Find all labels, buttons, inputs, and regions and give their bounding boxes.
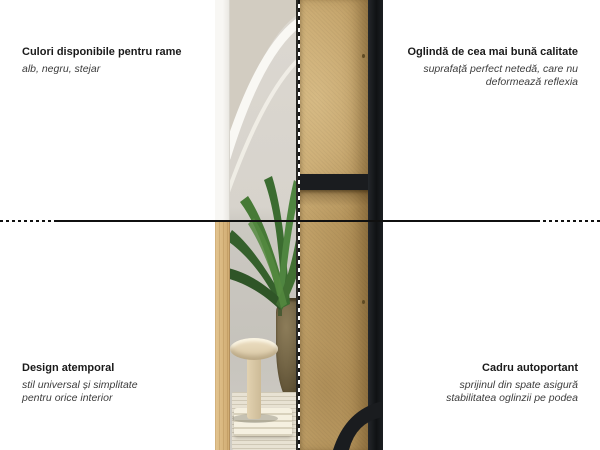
screw-dot [362, 300, 365, 304]
wooden-stool-leg [247, 355, 261, 419]
mirror-glass [230, 0, 298, 450]
callout-timeless-design: Design atemporal stil universal și simpl… [22, 362, 232, 406]
callout-line-dotted-right [543, 220, 600, 222]
callout-title: Design atemporal [22, 362, 232, 376]
callout-line-horizontal [57, 220, 540, 222]
front-back-divider-dotted-line [298, 0, 300, 450]
screw-dot [362, 54, 365, 58]
oak-frame-strip [215, 221, 230, 450]
callout-line-dotted-left [0, 220, 57, 222]
mirror-feature-infographic: Culori disponibile pentru rame alb, negr… [0, 0, 600, 450]
stand-bracket [300, 174, 374, 190]
callout-subtitle-line1: sprijinul din spate asigură [368, 379, 578, 393]
mdf-back-panel [300, 0, 368, 450]
callout-title: Cadru autoportant [368, 362, 578, 376]
palm-plant [230, 116, 298, 328]
callout-subtitle-line2: pentru orice interior [22, 392, 232, 406]
callout-frame-colors: Culori disponibile pentru rame alb, negr… [22, 46, 232, 76]
callout-subtitle-line2: deformează reflexia [368, 76, 578, 90]
callout-self-standing-frame: Cadru autoportant sprijinul din spate as… [368, 362, 578, 406]
callout-mirror-quality: Oglindă de cea mai bună calitate suprafa… [368, 46, 578, 90]
wooden-stool [230, 338, 278, 360]
callout-subtitle-line2: stabilitatea oglinzii pe podea [368, 392, 578, 406]
callout-title: Culori disponibile pentru rame [22, 46, 232, 60]
callout-subtitle-line1: suprafață perfect netedă, care nu [368, 63, 578, 77]
stand-bracket-shadow [300, 190, 374, 206]
white-frame-strip [215, 0, 230, 221]
callout-subtitle-line1: stil universal și simplitate [22, 379, 232, 393]
callout-subtitle: alb, negru, stejar [22, 63, 232, 77]
callout-title: Oglindă de cea mai bună calitate [368, 46, 578, 60]
